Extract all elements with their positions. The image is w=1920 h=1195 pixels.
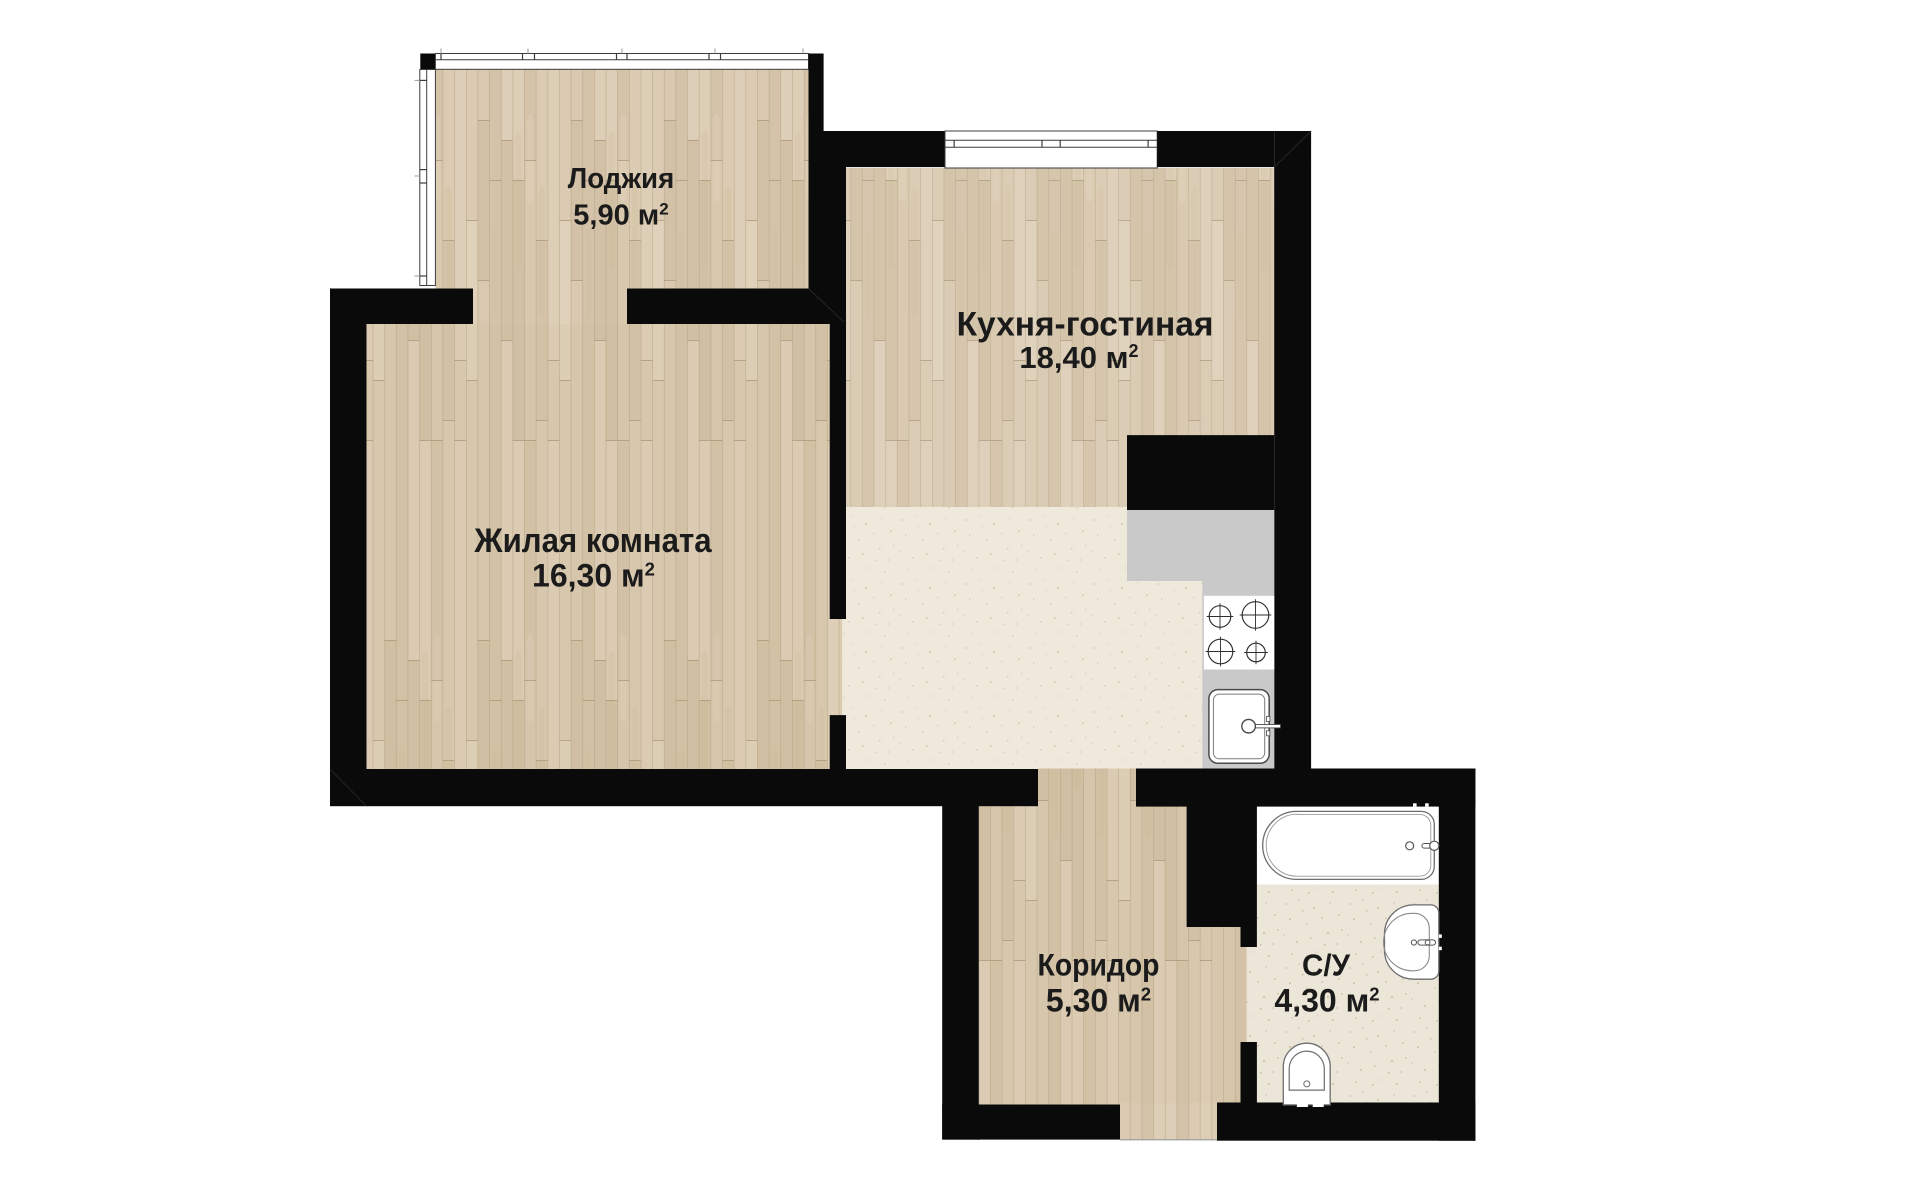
svg-text:5,90 м2: 5,90 м2 bbox=[573, 200, 668, 232]
svg-text:18,40 м2: 18,40 м2 bbox=[1019, 340, 1138, 375]
svg-text:5,30 м2: 5,30 м2 bbox=[1046, 983, 1151, 1019]
svg-text:Лоджия: Лоджия bbox=[568, 163, 674, 194]
svg-text:4,30 м2: 4,30 м2 bbox=[1274, 983, 1379, 1019]
svg-text:16,30 м2: 16,30 м2 bbox=[532, 558, 655, 594]
svg-text:С/У: С/У bbox=[1302, 949, 1351, 983]
svg-text:Коридор: Коридор bbox=[1038, 948, 1160, 983]
svg-text:Кухня-гостиная: Кухня-гостиная bbox=[957, 305, 1214, 344]
svg-text:Жилая комната: Жилая комната bbox=[473, 521, 712, 560]
